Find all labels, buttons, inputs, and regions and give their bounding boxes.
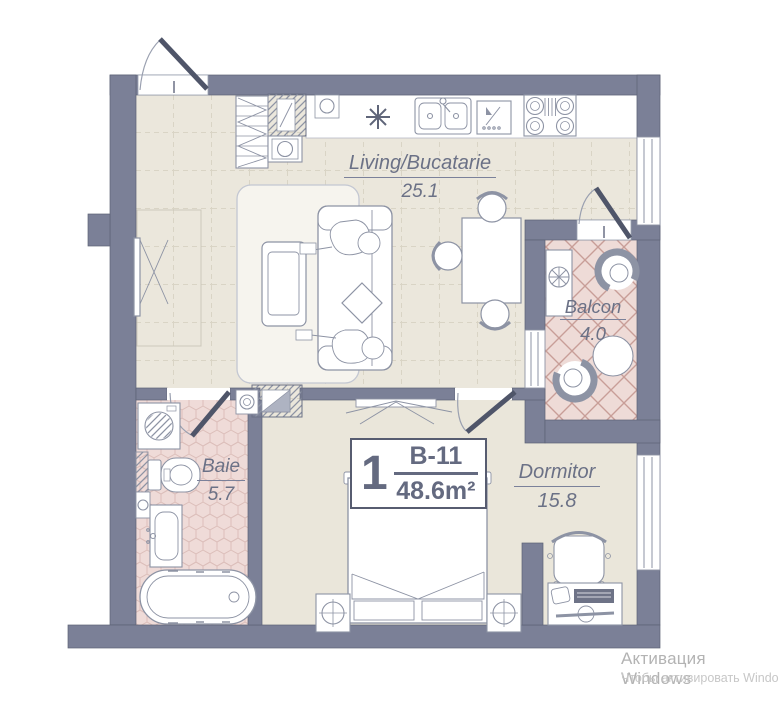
wall-divider-a [136, 388, 167, 400]
window-living-right [637, 137, 660, 225]
balcony-label: Balcon 4.0 [546, 296, 640, 345]
unit-room-count: 1 [352, 450, 388, 498]
washing-machine [138, 403, 180, 449]
kitchen-shaft [268, 94, 306, 136]
dining-table [462, 218, 521, 303]
bedroom-name: Dormitor [514, 461, 601, 487]
floor-plan-svg [0, 0, 779, 720]
nightstand-right [487, 594, 521, 632]
bedroom-door-opening [455, 388, 512, 400]
hall-shaft [252, 385, 302, 417]
bedroom-label: Dormitor 15.8 [501, 461, 613, 513]
bath-sink [147, 505, 182, 567]
coffee-table [262, 242, 306, 326]
living-room-area: 25.1 [335, 181, 505, 203]
bath-wall-fixture [136, 492, 150, 518]
living-room-name: Living/Bucatarie [344, 152, 496, 178]
unit-total-area: 48.6m² [394, 477, 478, 506]
bath-name: Baie [197, 456, 245, 481]
window-balcony-left [525, 330, 545, 388]
wall-left [110, 75, 136, 625]
desk [548, 583, 622, 625]
windows-activation-watermark-subtitle: Чтобы активировать Windo [621, 671, 779, 685]
desk-chair [548, 533, 611, 587]
bathtub [140, 570, 256, 624]
radiator-shelf [236, 96, 268, 168]
dishwasher [477, 101, 511, 134]
counter-fixture [315, 95, 339, 118]
living-room-label: Living/Bucatarie 25.1 [335, 152, 505, 203]
wall-divider-d [512, 388, 545, 400]
bath-wall-shaft [136, 452, 148, 492]
double-sink [415, 98, 471, 134]
unit-code: B-11 [394, 442, 478, 475]
bath-area: 5.7 [170, 484, 272, 506]
bedroom-area: 15.8 [501, 490, 613, 513]
nightstand-left [316, 594, 350, 632]
balcony-name: Balcon [560, 296, 627, 320]
balcony-area: 4.0 [546, 323, 640, 344]
wall-bottom [68, 625, 660, 648]
bath-label: Baie 5.7 [170, 456, 272, 506]
wall-balcony-bottom [545, 420, 660, 443]
stove [524, 95, 576, 136]
floor-plan-canvas: Living/Bucatarie 25.1 Balcon 4.0 Baie 5.… [0, 0, 779, 720]
wall-balcony-left-upper [525, 240, 545, 330]
window-bedroom-right [637, 455, 660, 570]
wall-divider-c [300, 388, 455, 400]
utility-sink [268, 136, 302, 162]
wall-left-pier [88, 214, 110, 246]
bath-corner-fixture [236, 390, 258, 414]
wall-bedroom-stub [522, 543, 543, 625]
unit-info-box: 1 B-11 48.6m² [350, 438, 487, 509]
